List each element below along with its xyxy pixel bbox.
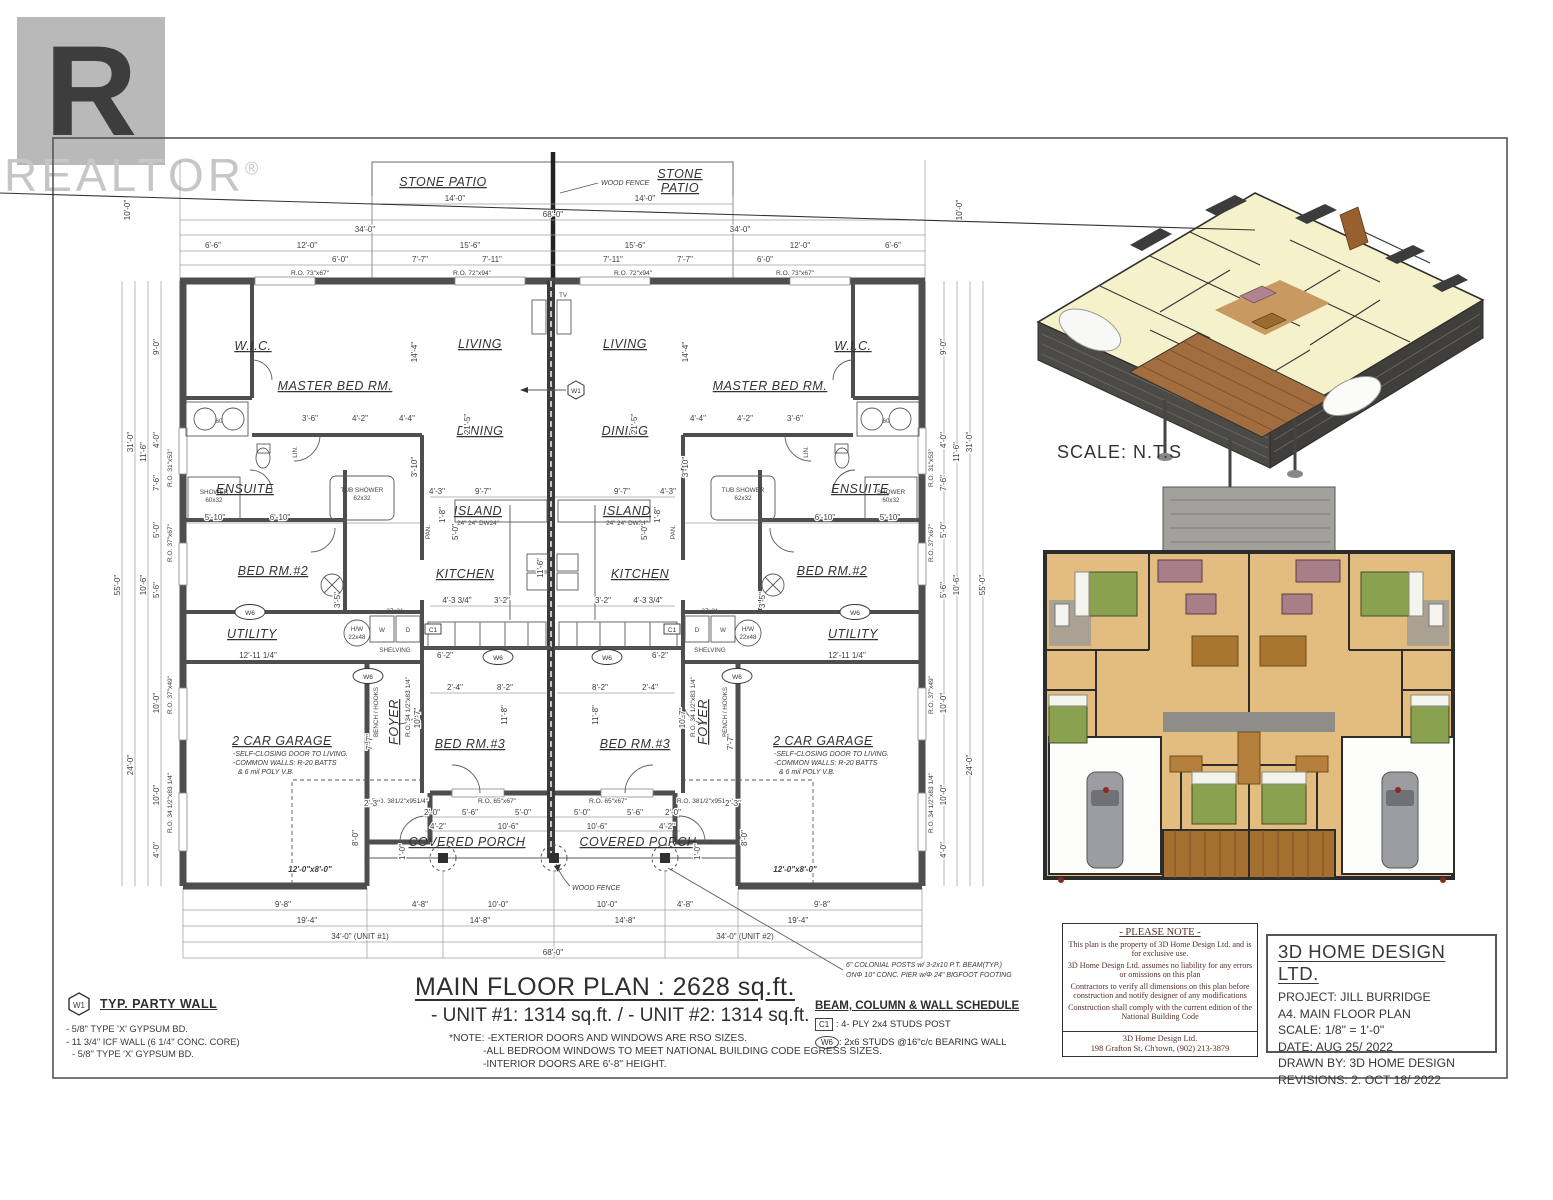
- room-label-bed3-unit1: BED RM.#3: [435, 737, 506, 751]
- room-label-kitchen-unit1: KITCHEN: [436, 567, 495, 581]
- wood-fence-label-bottom: WOOD FENCE: [572, 885, 621, 892]
- please-note-p4: Construction shall comply with the curre…: [1067, 1003, 1253, 1021]
- dim-label: 5'-6": [152, 582, 161, 598]
- dim-label: 10'-0": [939, 785, 948, 806]
- dim-label: 34'-0" (UNIT #1): [331, 932, 389, 941]
- dim-label: 10'-0": [488, 900, 509, 909]
- w6-marker: W6: [245, 610, 255, 617]
- dim-label: 5'-0": [939, 522, 948, 538]
- stone-patio-label-2a: STONE: [657, 167, 702, 181]
- dim-label: 6'-0": [332, 255, 348, 264]
- ro-label: R.O. 65"x67": [478, 798, 517, 805]
- hot-water-size: 22x48: [348, 634, 366, 641]
- dim-label: 3'-5": [758, 592, 767, 608]
- dim-label: 5'-0": [574, 808, 590, 817]
- party-wall-note: W1 TYP. PARTY WALL - 5/8" TYPE 'X' GYPSU…: [66, 991, 366, 1061]
- dim-label: 11'-6": [952, 442, 961, 462]
- dim-label: 7'-7": [365, 734, 374, 750]
- dim-label: 68'-0": [543, 948, 564, 957]
- dim-label: 2'-4": [642, 683, 658, 692]
- dim-label: 14'-4": [681, 342, 690, 363]
- please-note-address: 198 Grafton St. Ch'town, (902) 213-3879: [1065, 1044, 1255, 1054]
- dim-label: 5'-0": [451, 524, 460, 540]
- island-label-unit1: ISLAND: [454, 504, 502, 518]
- dim-label: 1'-0": [398, 844, 407, 860]
- please-note-p3: Contractors to verify all dimensions on …: [1067, 982, 1253, 1000]
- ro-label: R.O. 381/2"x951/4": [372, 798, 429, 805]
- porch-label-unit2: COVERED PORCH: [580, 835, 697, 849]
- dim-label: 11'-6": [536, 558, 545, 578]
- pantry-label: PAN.: [670, 525, 677, 539]
- dim-label: 2'-3": [364, 799, 380, 808]
- dim-label: 6'-2": [652, 651, 668, 660]
- bench-hooks-label: BENCH / HOOKS: [373, 687, 380, 737]
- dim-label: 6'-6": [885, 241, 901, 250]
- dim-label: 15'-6": [460, 241, 481, 250]
- ro-label: R.O. 37"x49": [928, 675, 935, 714]
- dim-label: 10'-0": [152, 693, 161, 714]
- dim-label: 21'-5": [630, 414, 639, 435]
- dim-label: 12'-0": [790, 241, 811, 250]
- dim-label: 10'-7": [678, 708, 687, 729]
- w1-hexagon-label: W1: [73, 1001, 86, 1010]
- dim-label: 3'-2": [595, 596, 611, 605]
- dim-label: 10'-7": [413, 708, 422, 729]
- dryer-label: D: [695, 627, 700, 634]
- dim-label: 68'-0": [543, 210, 564, 219]
- dim-label: 4'-2": [352, 414, 368, 423]
- scale-row: SCALE: 1/8" = 1'-0": [1278, 1022, 1485, 1039]
- dim-label: 34'-0": [730, 225, 751, 234]
- colonial-posts-note-1: 6" COLONIAL POSTS w/ 3-2x10 P.T. BEAM(TY…: [846, 962, 1002, 969]
- ro-label: R.O. 37"x67": [928, 523, 935, 562]
- dim-label: 4'-8": [677, 900, 693, 909]
- dim-label: 3'-6": [302, 414, 318, 423]
- dim-label: 31'-0": [126, 432, 135, 453]
- ro-label: R.O. 34 1/2"x83 1/4": [928, 772, 935, 833]
- party-wall-line-2: - 11 3/4" ICF WALL (6 1/4" CONC. CORE): [66, 1036, 366, 1049]
- room-label-wic-unit2: W.I.C.: [834, 339, 871, 353]
- ro-label: R.O. 31"x53": [167, 448, 174, 487]
- garage-note-2: -COMMON WALLS: R-20 BATTS: [233, 760, 337, 767]
- room-label-bed2-unit1: BED RM.#2: [238, 564, 309, 578]
- dim-label: 4'-4": [690, 414, 706, 423]
- w6-marker: W6: [363, 674, 373, 681]
- dim-label: 5'-6": [939, 582, 948, 598]
- w6-marker: W6: [732, 674, 742, 681]
- plan-note-3: -INTERIOR DOORS ARE 6'-8" HEIGHT.: [483, 1059, 905, 1072]
- dim-label: 24'-0": [965, 755, 974, 776]
- washer-label: W: [720, 627, 726, 634]
- hot-water-size: 22x48: [739, 634, 757, 641]
- tv-label: TV: [559, 292, 568, 299]
- ro-label: R.O. 34 1/2"x83 1/4": [167, 772, 174, 833]
- dim-label: 8'-0": [740, 830, 749, 846]
- dim-label: 6'-10": [815, 513, 836, 522]
- w1-hexagon-icon: W1: [66, 991, 92, 1017]
- dim-label: 5'-0": [515, 808, 531, 817]
- dim-label: 9'-8": [275, 900, 291, 909]
- island-label-unit2: ISLAND: [603, 504, 651, 518]
- dim-label: 3'-10": [681, 457, 690, 478]
- dim-label: 6'-0": [757, 255, 773, 264]
- dim-label: 15'-6": [625, 241, 646, 250]
- dim-label: 24'-0": [126, 755, 135, 776]
- dim-label: 4'-0": [939, 842, 948, 858]
- dim-label: 7'-11": [603, 255, 623, 264]
- please-note-p2: 3D Home Design Ltd. assumes no liability…: [1067, 961, 1253, 979]
- dim-label: 11'-8": [591, 705, 600, 725]
- please-note-footer: 3D Home Design Ltd. 198 Grafton St. Ch't…: [1063, 1031, 1257, 1056]
- dim-label: 4'-2": [737, 414, 753, 423]
- dim-label: 19'-4": [297, 916, 318, 925]
- dim-label: 6'-10": [270, 513, 291, 522]
- c1-desc: : 4- PLY 2x4 STUDS POST: [836, 1019, 951, 1030]
- dim-label: 14'-0": [445, 194, 466, 203]
- dim-label: 4'-8": [412, 900, 428, 909]
- pantry-label: PAN.: [425, 525, 432, 539]
- dim-label: 3'-6": [787, 414, 803, 423]
- dim-label: 8'-0": [351, 830, 360, 846]
- dim-label: 7'-6": [152, 475, 161, 491]
- porch-label-unit1: COVERED PORCH: [409, 835, 526, 849]
- w6-desc: : 2x6 STUDS @16"c/c BEARING WALL: [839, 1037, 1006, 1048]
- dim-label: 34'-0": [355, 225, 376, 234]
- dim-label: 4'-0": [152, 842, 161, 858]
- room-label-foyer-unit1: FOYER: [387, 699, 401, 745]
- scale-nts-label: SCALE: N.T.S: [1057, 442, 1182, 463]
- dim-label: 10'-6": [498, 822, 519, 831]
- dim-label: 5'-10": [880, 513, 901, 522]
- company-name: 3D HOME DESIGN LTD.: [1278, 941, 1485, 985]
- room-label-utility-unit1: UTILITY: [227, 627, 278, 641]
- dim-label: 7'-11": [482, 255, 502, 264]
- dryer-label: D: [406, 627, 411, 634]
- w6-marker: W6: [850, 610, 860, 617]
- c1-marker: C1: [668, 627, 677, 634]
- party-wall-line-3: - 5/8" TYPE 'X' GYPSUM BD.: [72, 1048, 366, 1061]
- render-3d: [0, 193, 1483, 498]
- washer-dryer-size: 27x31: [386, 608, 404, 615]
- dim-label: 7'-7": [677, 255, 693, 264]
- dim-label: 12'-0": [297, 241, 318, 250]
- dim-label: 11'-6": [139, 442, 148, 462]
- dim-label: 21'-5": [463, 414, 472, 435]
- dim-label: 4'-2": [430, 822, 446, 831]
- dim-label: 4'-3 3/4": [442, 596, 471, 605]
- dim-label: 4'-2": [659, 822, 675, 831]
- dim-label: 10'-0": [597, 900, 618, 909]
- dim-label: 34'-0" (UNIT #2): [716, 932, 774, 941]
- room-label-utility-unit2: UTILITY: [828, 627, 879, 641]
- dim-label: 55'-0": [113, 575, 122, 596]
- ro-label: R.O. 34 1/2"x83 1/4": [690, 676, 697, 737]
- dim-label: 10'-6": [587, 822, 608, 831]
- room-label-master-unit2: MASTER BED RM.: [713, 379, 828, 393]
- dim-label: 11'-8": [500, 705, 509, 725]
- dim-label: 2'-3": [725, 799, 741, 808]
- w6-marker: W6: [493, 655, 503, 662]
- vanity-size: 60: [215, 418, 223, 425]
- dim-label: 9'-7": [475, 487, 491, 496]
- dim-label: 1'-0": [693, 844, 702, 860]
- ro-label: R.O. 31"x53": [928, 448, 935, 487]
- please-note-box: - PLEASE NOTE - This plan is the propert…: [1062, 923, 1258, 1057]
- room-label-ensuite-unit1: ENSUITE: [216, 482, 274, 496]
- dim-label: 4'-3": [660, 487, 676, 496]
- room-label-living-unit2: LIVING: [603, 337, 647, 351]
- please-note-company: 3D Home Design Ltd.: [1065, 1034, 1255, 1044]
- rendered-floor-plan: [1045, 487, 1454, 883]
- room-label-bed2-unit2: BED RM.#2: [797, 564, 868, 578]
- tub-shower-label: TUB SHOWER: [722, 487, 765, 494]
- dim-label: 7'-7": [412, 255, 428, 264]
- dim-label: 1'-8": [438, 507, 447, 523]
- stone-patio-label-2b: PATIO: [661, 181, 699, 195]
- dim-label: 9'-8": [814, 900, 830, 909]
- dim-label: 9'-0": [939, 339, 948, 355]
- dim-label: 7'-6": [939, 475, 948, 491]
- dim-label: 12'-11 1/4": [828, 651, 866, 660]
- dim-label: 1'-8": [653, 507, 662, 523]
- room-label-garage-unit1: 2 CAR GARAGE: [231, 734, 332, 748]
- dim-label: 5'-6": [627, 808, 643, 817]
- dimensions-top: 14'-0" 14'-0" 68'-0" 34'-0" 34'-0" 6'-6"…: [123, 194, 964, 277]
- tub-shower-size: 62x32: [353, 495, 371, 502]
- garage-door-size: 12'-0"x8'-0": [288, 865, 332, 874]
- garage-door-size: 12'-0"x8'-0": [773, 865, 817, 874]
- ro-label: R.O. 34 1/2"x83 1/4": [405, 676, 412, 737]
- dim-label: 5'-0": [152, 522, 161, 538]
- dim-label: 14'-0": [635, 194, 656, 203]
- room-label-dining-unit2: DINING: [602, 424, 649, 438]
- party-wall-lines: - 5/8" TYPE 'X' GYPSUM BD. - 11 3/4" ICF…: [66, 1023, 366, 1061]
- washer-label: W: [379, 627, 385, 634]
- dim-label: 8'-2": [592, 683, 608, 692]
- party-wall-line-1: - 5/8" TYPE 'X' GYPSUM BD.: [66, 1023, 366, 1036]
- dim-label: 7'-7": [726, 734, 735, 750]
- room-label-ensuite-unit2: ENSUITE: [831, 482, 889, 496]
- garage-note-2: -COMMON WALLS: R-20 BATTS: [774, 760, 878, 767]
- dim-label: 4'-3": [429, 487, 445, 496]
- room-label-foyer-unit2: FOYER: [696, 699, 710, 745]
- room-label-bed3-unit2: BED RM.#3: [600, 737, 671, 751]
- ro-label: R.O. 72"x94": [453, 270, 492, 277]
- dim-label: 10'-0": [955, 200, 964, 221]
- dim-label: 10'-0": [123, 200, 132, 221]
- dim-label: 10'-0": [939, 693, 948, 714]
- dim-label: 6'-2": [437, 651, 453, 660]
- ro-label: R.O. 37"x49": [167, 675, 174, 714]
- tub-shower-size: 62x32: [734, 495, 752, 502]
- dim-label: 9'-7": [614, 487, 630, 496]
- dim-label: 14'-8": [615, 916, 636, 925]
- garage-note-1: -SELF-CLOSING DOOR TO LIVING.: [774, 751, 889, 758]
- party-wall-title: TYP. PARTY WALL: [100, 997, 217, 1011]
- drawn-by-row: DRAWN BY: 3D HOME DESIGN: [1278, 1055, 1485, 1072]
- wood-fence-label-top: WOOD FENCE: [601, 180, 650, 187]
- dim-label: 3'-5": [333, 592, 342, 608]
- ro-label: R.O. 73"x67": [291, 270, 330, 277]
- dim-label: 5'-6": [462, 808, 478, 817]
- title-block: 3D HOME DESIGN LTD. PROJECT: JILL BURRID…: [1266, 934, 1497, 1053]
- ro-label: R.O. 65"x67": [589, 798, 628, 805]
- room-label-master-unit1: MASTER BED RM.: [278, 379, 393, 393]
- drawing-sheet: { "watermark": {"logo_letter": "R", "bra…: [0, 0, 1553, 1200]
- ro-label: R.O. 72"x94": [614, 270, 653, 277]
- vanity-size: 60: [882, 418, 890, 425]
- sheet-row: A4. MAIN FLOOR PLAN: [1278, 1006, 1485, 1023]
- plan-title: MAIN FLOOR PLAN : 2628 sq.ft.: [415, 973, 905, 1002]
- shelving-label: SHELVING: [694, 647, 725, 654]
- room-label-living-unit1: LIVING: [458, 337, 502, 351]
- hot-water-label: H/W: [351, 626, 363, 633]
- stone-patio-label: STONE PATIO: [399, 175, 486, 189]
- shower-size: 60x32: [882, 497, 900, 504]
- project-row: PROJECT: JILL BURRIDGE: [1278, 989, 1485, 1006]
- dim-label: 2'-4": [447, 683, 463, 692]
- ro-label: R.O. 73"x67": [776, 270, 815, 277]
- dim-label: 3'-2": [494, 596, 510, 605]
- room-label-garage-unit2: 2 CAR GARAGE: [772, 734, 873, 748]
- garage-note-3: & 6 mil POLY V.B.: [238, 769, 294, 776]
- please-note-p1: This plan is the property of 3D Home Des…: [1067, 940, 1253, 958]
- dim-label: 10'-0": [152, 785, 161, 806]
- tub-shower-label: TUB SHOWER: [341, 487, 384, 494]
- garage-note-3: & 6 mil POLY V.B.: [779, 769, 835, 776]
- dim-label: 14'-8": [470, 916, 491, 925]
- washer-dryer-size: 27x31: [701, 608, 719, 615]
- dim-label: 10'-6": [139, 575, 148, 596]
- please-note-title: - PLEASE NOTE -: [1067, 927, 1253, 938]
- dim-label: 12'-11 1/4": [239, 651, 277, 660]
- room-label-wic-unit1: W.I.C.: [234, 339, 271, 353]
- c1-tag: C1: [815, 1018, 833, 1031]
- linen-label: LIN.: [292, 446, 299, 458]
- date-row: DATE: AUG 25/ 2022: [1278, 1039, 1485, 1056]
- bench-hooks-label: BENCH / HOOKS: [722, 687, 729, 737]
- dim-label: 9'-0": [152, 339, 161, 355]
- room-label-kitchen-unit2: KITCHEN: [611, 567, 670, 581]
- dim-label: 14'-4": [410, 342, 419, 363]
- c1-marker: C1: [429, 627, 438, 634]
- dim-label: 2'-0": [424, 808, 440, 817]
- dim-label: 4'-3 3/4": [633, 596, 662, 605]
- dim-label: 55'-0": [978, 575, 987, 596]
- dim-label: 19'-4": [788, 916, 809, 925]
- dim-label: 5'-0": [640, 524, 649, 540]
- island-base-sizes: 24" 24" DW24": [457, 520, 499, 527]
- dim-label: 4'-0": [939, 432, 948, 448]
- dim-label: 8'-2": [497, 683, 513, 692]
- w6-tag: W6: [815, 1036, 839, 1049]
- w1-marker: W1: [571, 388, 581, 395]
- ro-label: R.O. 37"x67": [167, 523, 174, 562]
- dim-label: 31'-0": [965, 432, 974, 453]
- dim-label: 6'-6": [205, 241, 221, 250]
- dim-label: 5'-10": [205, 513, 226, 522]
- shelving-label: SHELVING: [379, 647, 410, 654]
- garage-note-1: -SELF-CLOSING DOOR TO LIVING.: [233, 751, 348, 758]
- dim-label: 4'-0": [152, 432, 161, 448]
- dim-label: 10'-6": [952, 575, 961, 596]
- shower-size: 60x32: [205, 497, 223, 504]
- dim-label: 3'-10": [410, 457, 419, 478]
- w6-marker: W6: [602, 655, 612, 662]
- linen-label: LIN.: [803, 446, 810, 458]
- dim-label: 4'-4": [399, 414, 415, 423]
- revisions-row: REVISIONS: 2. OCT 18/ 2022: [1278, 1072, 1485, 1089]
- dim-label: 2'-0": [665, 808, 681, 817]
- hot-water-label: H/W: [742, 626, 754, 633]
